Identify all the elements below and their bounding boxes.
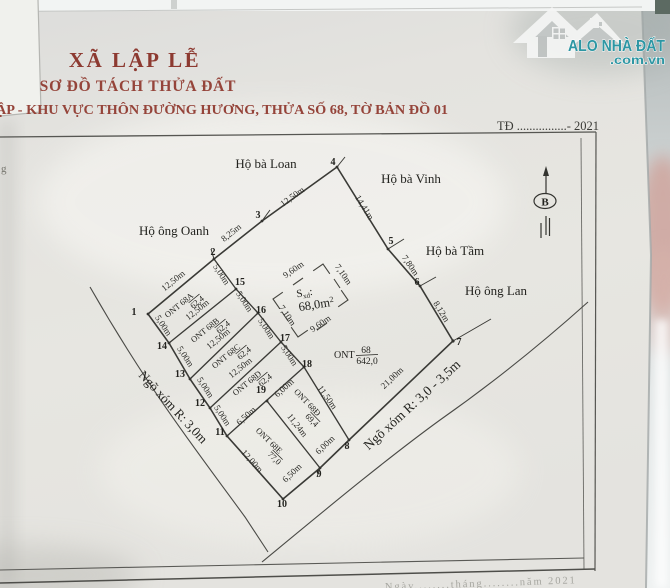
svg-text:.com.vn: .com.vn — [610, 53, 665, 67]
